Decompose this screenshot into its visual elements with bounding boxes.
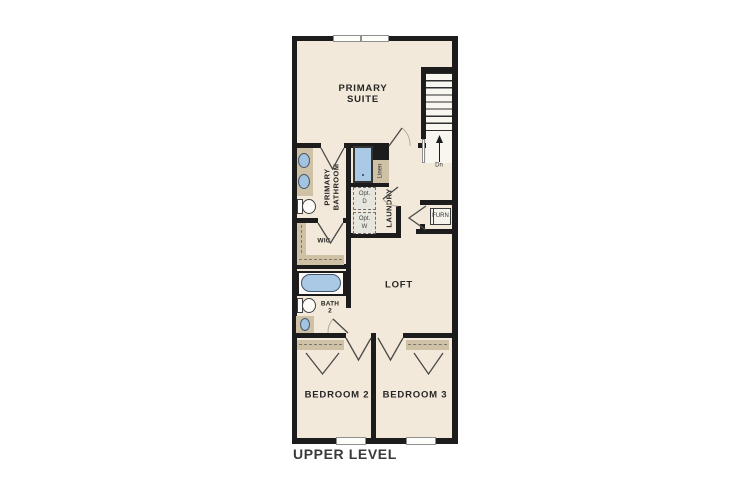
bath2-line1: BATH: [321, 301, 339, 308]
wall: [452, 36, 458, 444]
plan-title: UPPER LEVEL: [293, 446, 397, 462]
laundry-label: LAUNDRY: [386, 188, 395, 227]
bedroom3-label: BEDROOM 3: [383, 391, 448, 402]
primary-bathroom-line2: BATHROOM: [331, 164, 340, 211]
primary-bathroom-label: PRIMARY BATHROOM: [323, 164, 340, 211]
window: [361, 35, 389, 42]
sink-icon: [300, 318, 310, 331]
wall: [403, 333, 452, 338]
sink-icon: [298, 153, 310, 168]
floorplan-page: Dn Linen Opt. D Opt. W FURN: [0, 0, 750, 500]
window: [333, 35, 361, 42]
shower-drain-icon: [362, 174, 364, 176]
toilet-icon: [302, 298, 316, 313]
bath2-door: [333, 319, 348, 333]
closet-shelf: [297, 340, 344, 350]
primary-suite-door: [389, 128, 402, 146]
stairs-direction-label: Dn: [435, 163, 443, 170]
linen-label: Linen: [378, 164, 385, 179]
bath2-label: BATH 2: [321, 301, 339, 316]
optional-dryer-line1: Opt.: [359, 191, 370, 197]
window: [336, 437, 366, 445]
bedroom3-door: [378, 338, 403, 360]
stair-railing: [422, 139, 425, 163]
window: [406, 437, 436, 445]
bathtub-icon: [301, 274, 341, 292]
wall: [371, 333, 376, 438]
wall: [343, 218, 351, 223]
wic-label: WIC: [317, 237, 330, 244]
furnace-label: FURN: [432, 213, 449, 219]
bath2-door-arc: [328, 319, 333, 333]
optional-washer-line2: W: [362, 224, 368, 230]
bedroom3-closet-door: [414, 353, 443, 374]
optional-washer: Opt. W: [353, 212, 376, 234]
loft-label: LOFT: [385, 281, 413, 292]
stairs-treads: [426, 73, 452, 137]
optional-dryer-line2: D: [362, 199, 366, 205]
toilet-icon: [302, 199, 316, 214]
primary-suite-line2: SUITE: [347, 94, 379, 105]
shower-icon: [353, 146, 373, 183]
bedroom2-label: BEDROOM 2: [305, 391, 370, 402]
wall: [416, 229, 452, 234]
wall: [292, 333, 346, 338]
bedroom2-door: [346, 338, 371, 360]
closet-shelf: [297, 255, 344, 265]
furnace-unit: FURN: [430, 208, 451, 225]
primary-suite-line1: PRIMARY: [338, 83, 387, 94]
wall: [420, 200, 452, 205]
wall: [373, 143, 389, 160]
closet-shelf: [406, 340, 449, 350]
optional-dryer: Opt. D: [353, 187, 376, 210]
bath2-line2: 2: [328, 308, 332, 315]
sink-icon: [298, 174, 310, 189]
primary-suite-door-arc: [402, 128, 410, 146]
optional-washer-line1: Opt.: [359, 216, 370, 222]
wall: [346, 143, 351, 308]
stairs-landing: [426, 137, 452, 163]
floorplan: Dn Linen Opt. D Opt. W FURN: [292, 36, 458, 444]
bedroom2-closet-door: [306, 353, 339, 374]
primary-suite-label: PRIMARY SUITE: [338, 84, 387, 106]
